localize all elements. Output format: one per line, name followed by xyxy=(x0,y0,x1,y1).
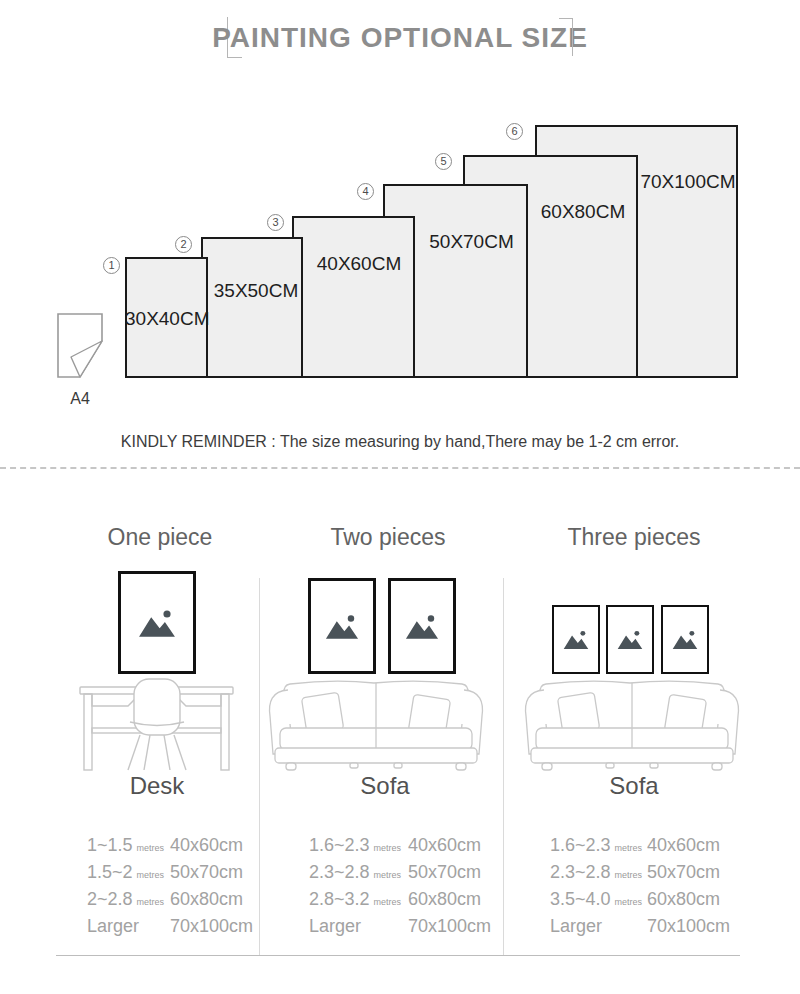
recommended-size: 40x60cm xyxy=(408,835,481,856)
a4-paper-icon xyxy=(56,313,104,379)
recommended-size: 50x70cm xyxy=(170,862,243,883)
recommended-size: 70x100cm xyxy=(647,916,730,937)
size-table-one-piece: 1~1.5metres 40x60cm 1.5~2metres 50x70cm … xyxy=(87,835,253,943)
desk-illustration-icon xyxy=(78,678,235,772)
image-placeholder-icon xyxy=(405,613,439,640)
wall-range: Larger xyxy=(87,916,139,937)
title-bracket-right-icon xyxy=(559,18,573,56)
unit-label: metres xyxy=(374,870,402,880)
page-title: PAINTING OPTIONAL SIZE xyxy=(0,22,800,54)
column-divider xyxy=(259,578,260,955)
dashed-divider xyxy=(0,467,800,469)
sofa-illustration-icon xyxy=(264,678,488,772)
column-heading-two-pieces: Two pieces xyxy=(288,524,488,551)
unit-label: metres xyxy=(615,870,643,880)
size-label: 40X60CM xyxy=(303,253,415,275)
size-badge-3: 3 xyxy=(267,214,284,231)
sofa-illustration-icon xyxy=(518,678,746,772)
size-badge-1: 1 xyxy=(103,257,120,274)
table-row: 2~2.8metres 60x80cm xyxy=(87,889,253,916)
unit-label: metres xyxy=(137,897,165,907)
picture-frame xyxy=(552,605,600,674)
wall-range: 1.6~2.3 xyxy=(550,835,611,856)
painting-size-infographic: PAINTING OPTIONAL SIZE 30X40CM 35X50CM 4… xyxy=(0,0,800,994)
image-placeholder-icon xyxy=(672,629,698,650)
image-placeholder-icon xyxy=(138,608,176,638)
table-row: 1.6~2.3metres 40x60cm xyxy=(550,835,730,862)
furniture-label-desk: Desk xyxy=(57,772,257,800)
reminder-text: KINDLY REMINDER : The size measuring by … xyxy=(0,433,800,451)
size-label: 60X80CM xyxy=(528,201,638,223)
image-placeholder-icon xyxy=(325,613,359,640)
table-baseline xyxy=(56,955,740,956)
size-table-two-pieces: 1.6~2.3metres 40x60cm 2.3~2.8metres 50x7… xyxy=(309,835,491,943)
size-label: 35X50CM xyxy=(208,280,304,302)
size-badge-2: 2 xyxy=(175,236,192,253)
wall-range: 2.3~2.8 xyxy=(550,862,611,883)
recommended-size: 60x80cm xyxy=(170,889,243,910)
wall-range: 1.5~2 xyxy=(87,862,133,883)
recommended-size: 40x60cm xyxy=(647,835,720,856)
size-table-three-pieces: 1.6~2.3metres 40x60cm 2.3~2.8metres 50x7… xyxy=(550,835,730,943)
table-row: 2.8~3.2metres 60x80cm xyxy=(309,889,491,916)
unit-label: metres xyxy=(615,843,643,853)
column-heading-three-pieces: Three pieces xyxy=(534,524,734,551)
wall-range: 2~2.8 xyxy=(87,889,133,910)
furniture-label-sofa: Sofa xyxy=(285,772,485,800)
picture-frame xyxy=(308,578,376,674)
wall-range: 3.5~4.0 xyxy=(550,889,611,910)
recommended-size: 60x80cm xyxy=(647,889,720,910)
table-row: Larger 70x100cm xyxy=(309,916,491,943)
unit-label: metres xyxy=(374,897,402,907)
table-row: 2.3~2.8metres 50x70cm xyxy=(550,862,730,889)
unit-label: metres xyxy=(137,843,165,853)
picture-frame xyxy=(388,578,456,674)
wall-range: 1.6~2.3 xyxy=(309,835,370,856)
size-rect-40x60 xyxy=(292,216,415,378)
recommended-size: 60x80cm xyxy=(408,889,481,910)
size-rect-35x50 xyxy=(201,237,303,378)
size-badge-4: 4 xyxy=(357,183,374,200)
wall-range: Larger xyxy=(550,916,602,937)
picture-frame xyxy=(661,605,709,674)
wall-range: Larger xyxy=(309,916,361,937)
size-label: 30X40CM xyxy=(125,308,209,330)
recommended-size: 50x70cm xyxy=(647,862,720,883)
picture-frame xyxy=(606,605,654,674)
image-placeholder-icon xyxy=(563,629,589,650)
furniture-label-sofa: Sofa xyxy=(534,772,734,800)
recommended-size: 50x70cm xyxy=(408,862,481,883)
table-row: Larger 70x100cm xyxy=(87,916,253,943)
unit-label: metres xyxy=(374,843,402,853)
size-label: 50X70CM xyxy=(415,231,528,253)
table-row: Larger 70x100cm xyxy=(550,916,730,943)
table-row: 3.5~4.0metres 60x80cm xyxy=(550,889,730,916)
column-divider xyxy=(503,578,504,955)
column-heading-one-piece: One piece xyxy=(60,524,260,551)
size-badge-5: 5 xyxy=(435,153,452,170)
a4-label: A4 xyxy=(56,390,104,408)
table-row: 2.3~2.8metres 50x70cm xyxy=(309,862,491,889)
recommended-size: 70x100cm xyxy=(408,916,491,937)
recommended-size: 40x60cm xyxy=(170,835,243,856)
picture-frame xyxy=(118,571,196,674)
size-label: 70X100CM xyxy=(638,171,738,193)
table-row: 1.6~2.3metres 40x60cm xyxy=(309,835,491,862)
wall-range: 1~1.5 xyxy=(87,835,133,856)
table-row: 1.5~2metres 50x70cm xyxy=(87,862,253,889)
table-row: 1~1.5metres 40x60cm xyxy=(87,835,253,862)
recommended-size: 70x100cm xyxy=(170,916,253,937)
size-badge-6: 6 xyxy=(506,123,523,140)
wall-range: 2.3~2.8 xyxy=(309,862,370,883)
image-placeholder-icon xyxy=(617,629,643,650)
unit-label: metres xyxy=(137,870,165,880)
wall-range: 2.8~3.2 xyxy=(309,889,370,910)
unit-label: metres xyxy=(615,897,643,907)
